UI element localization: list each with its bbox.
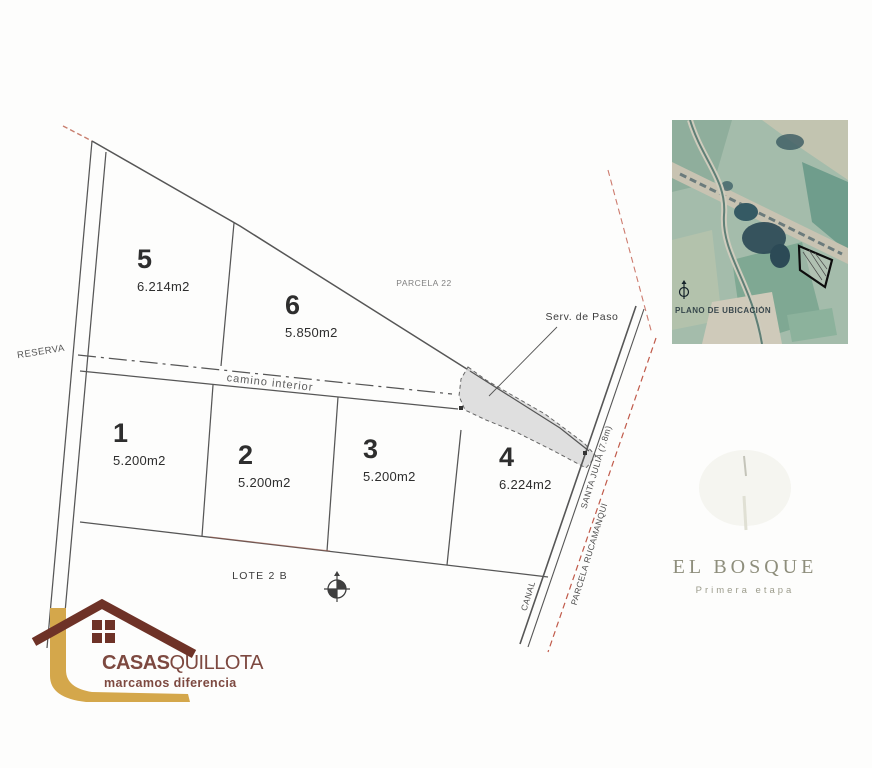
- red-boundary-dash-topleft: [63, 126, 92, 141]
- parcel-6-area: 5.850m2: [285, 326, 338, 339]
- el-bosque-subtitle: Primera etapa: [630, 585, 860, 596]
- parcel-6-number: 6: [285, 292, 338, 319]
- inset-caption: PLANO DE UBICACIÓN: [675, 306, 771, 315]
- parcel-label-2: 2 5.200m2: [238, 442, 291, 489]
- parcel-label-1: 1 5.200m2: [113, 420, 166, 467]
- parcel-4-number: 4: [499, 444, 552, 471]
- parcel-1-area: 5.200m2: [113, 454, 166, 467]
- parcel-label-3: 3 5.200m2: [363, 436, 416, 483]
- parcel-5-number: 5: [137, 246, 190, 273]
- parcel-1-number: 1: [113, 420, 166, 447]
- wordmark-casas: CASAS: [102, 652, 170, 674]
- tree-watermark-icon: [630, 430, 860, 550]
- reserva-outer-line: [47, 141, 92, 648]
- serv-de-paso-leader-line: [489, 327, 557, 396]
- divider-parcel2-3: [327, 397, 338, 551]
- junction-node-east: [583, 451, 587, 455]
- parcel-4-area: 6.224m2: [499, 478, 552, 491]
- label-parcela-22: PARCELA 22: [396, 278, 451, 288]
- divider-parcel3-4: [447, 430, 461, 565]
- parcel-label-5: 5 6.214m2: [137, 246, 190, 293]
- divider-parcel5-6: [221, 223, 234, 366]
- parcel-3-area: 5.200m2: [363, 470, 416, 483]
- divider-parcel1-2: [202, 385, 213, 536]
- el-bosque-mark: EL BOSQUE Primera etapa: [630, 430, 860, 610]
- casas-quillota-tagline: marcamos diferencia: [104, 676, 237, 690]
- label-serv-de-paso: Serv. de Paso: [546, 311, 619, 323]
- casas-quillota-wordmark: CASASQUILLOTA: [102, 652, 263, 675]
- casas-quillota-logo: CASASQUILLOTA marcamos diferencia: [28, 580, 263, 740]
- parcel-2-area: 5.200m2: [238, 476, 291, 489]
- parcel-5-area: 6.214m2: [137, 280, 190, 293]
- parcel-3-number: 3: [363, 436, 416, 463]
- compass-icon: [324, 571, 350, 602]
- south-boundary-red-tint: [210, 537, 330, 551]
- parcel-label-4: 4 6.224m2: [499, 444, 552, 491]
- wordmark-quillota: QUILLOTA: [170, 652, 263, 674]
- el-bosque-title: EL BOSQUE: [630, 556, 860, 579]
- parcel-label-6: 6 5.850m2: [285, 292, 338, 339]
- location-aerial-inset: PLANO DE UBICACIÓN: [672, 120, 848, 344]
- window-icon: [92, 620, 115, 643]
- parcel-2-number: 2: [238, 442, 291, 469]
- red-dashed-boundary-upper: [608, 170, 652, 334]
- junction-node-west: [459, 406, 463, 410]
